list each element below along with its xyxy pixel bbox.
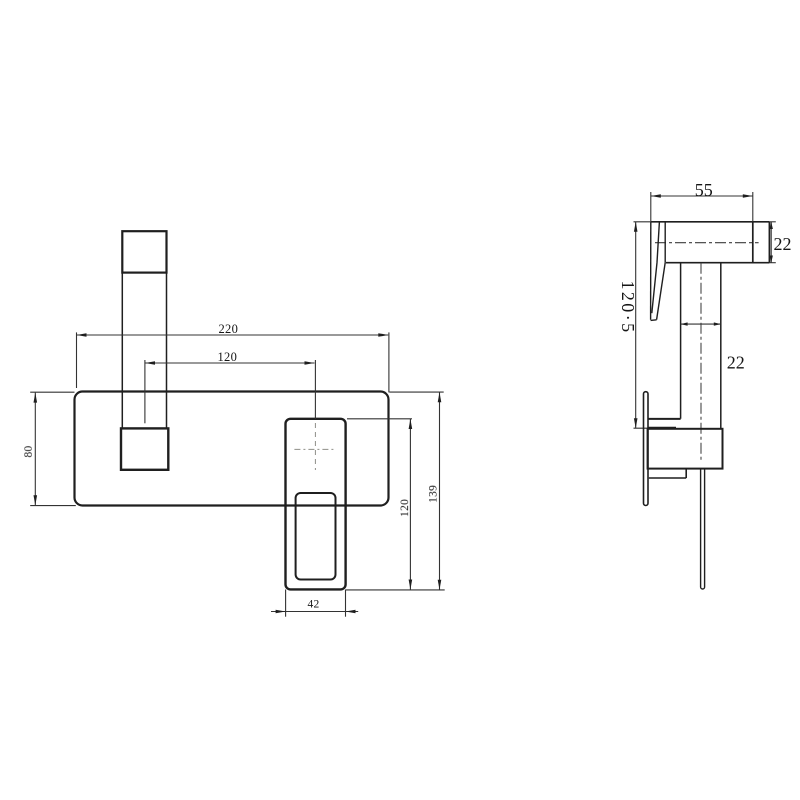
svg-text:220: 220 bbox=[218, 322, 238, 336]
svg-text:55: 55 bbox=[695, 180, 713, 200]
svg-text:120: 120 bbox=[399, 499, 411, 517]
svg-text:80: 80 bbox=[23, 445, 35, 457]
svg-text:120: 120 bbox=[217, 350, 237, 364]
svg-text:42: 42 bbox=[307, 599, 319, 611]
svg-text:22: 22 bbox=[727, 353, 745, 373]
svg-text:139: 139 bbox=[427, 485, 439, 503]
svg-text:22: 22 bbox=[774, 234, 792, 254]
svg-text:120·5: 120·5 bbox=[618, 281, 638, 335]
